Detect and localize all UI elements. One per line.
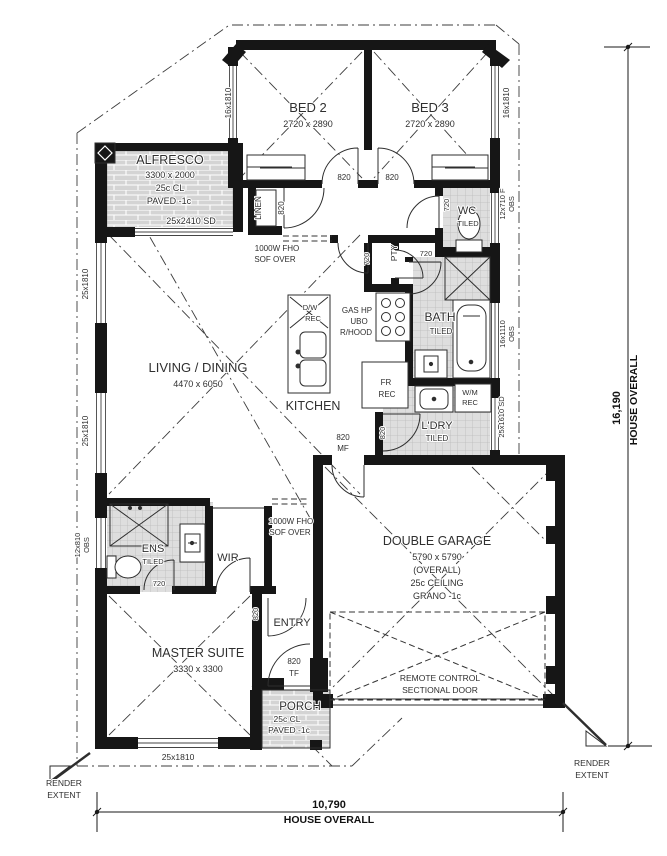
label-render-extent-left-2: EXTENT [47,790,81,800]
dim-width [93,792,567,832]
label-room-bath-finish: TILED [430,327,453,336]
label-washing-machine-label-1: W/M [462,388,477,397]
label-room-garage-name: DOUBLE GARAGE [383,534,491,548]
label-dim-height-caption: HOUSE OVERALL [628,354,640,445]
label-linen-label: LINEN [254,196,263,220]
label-door-kitchen-label: 720 [362,253,371,266]
label-window-bed2-label: 16x1810 [224,87,233,118]
label-washing-machine-label-2: REC [462,398,478,407]
label-room-master-name: MASTER SUITE [152,646,244,660]
label-render-extent-left-1: RENDER [46,778,82,788]
label-room-porch-finish: PAVED -1c [268,725,310,735]
laundry-trough [415,386,453,412]
window-living-1 [95,243,107,323]
label-bulkhead-entry-label-2: SOF OVER [269,528,311,537]
render-extent-pointer-right [563,703,606,746]
label-window-wc-label-2: OBS [507,196,516,212]
label-door-laundry-label: 820 [378,427,387,440]
label-room-bed3-dims: 2720 x 2890 [405,119,455,129]
label-door-wc-label: 720 [442,199,451,212]
label-door-front-label-2: TF [289,669,299,678]
label-room-wc-finish: TILED [457,219,479,228]
label-window-living-label-1: 25x1810 [81,268,90,299]
label-bulkhead-kitchen-label-1: 1000W FHO [255,244,299,253]
label-bulkhead-entry-label-1: 1000W FHO [269,517,313,526]
label-window-bath-label-2: OBS [507,326,516,342]
label-window-ens-label-2: OBS [82,537,91,553]
label-window-wc-label-1: 12x710 F [498,188,507,220]
label-render-extent-right-1: RENDER [574,758,610,768]
label-door-bath-label: 720 [420,249,433,258]
label-door-garage-entry-label-1: 820 [336,433,350,442]
label-door-entry-label: 820 [251,608,260,621]
label-room-alfresco-ceiling: 25c CL [156,183,185,193]
cooktop [376,293,410,341]
label-room-wc-name: WC [458,205,476,217]
label-room-laundry-finish: TILED [426,434,449,443]
window-bed3 [490,66,500,138]
vanity-ens [180,524,205,562]
label-room-entry-name: ENTRY [273,617,311,629]
robe-bed2 [247,155,305,180]
label-window-ens-label-1: 12x810 [73,533,82,558]
label-room-garage-note-1: (OVERALL) [413,565,461,575]
label-window-living-label-2: 25x1810 [81,415,90,446]
label-garage-door-label-2: SECTIONAL DOOR [402,685,478,695]
window-master-front [138,737,218,749]
label-kitchen-appliance-label-3: R/HOOD [340,328,372,337]
label-room-kitchen-name: KITCHEN [286,399,341,413]
label-room-living-name: LIVING / DINING [149,360,248,375]
label-room-bed2-name: BED 2 [289,100,327,115]
label-room-garage-note-2: 25c CEILING [410,578,463,588]
label-kitchen-appliance-label-2: UBO [350,317,367,326]
label-room-alfresco-finish: PAVED -1c [147,196,192,206]
label-room-ens-name: ENS [142,543,165,555]
sliding-door-alfresco [135,227,233,237]
door-wc [407,196,439,228]
label-kitchen-dw-label-2: REC [305,314,321,323]
label-kitchen-appliance-label-1: GAS HP [342,306,372,315]
floor-plan-drawing: BED 22720 x 2890BED 32720 x 289016x18101… [0,0,667,856]
label-pantry-label: PTY [389,244,399,261]
bathtub [453,300,490,378]
label-dim-width-caption: HOUSE OVERALL [284,814,375,826]
label-room-alfresco-name: ALFRESCO [136,153,204,167]
label-room-master-dims: 3330 x 3300 [173,664,223,674]
label-render-extent-right-2: EXTENT [575,770,609,780]
label-room-bath-name: BATH [424,310,455,324]
label-fridge-recess-label-1: FR [381,378,392,387]
label-room-alfresco-dims: 3300 x 2000 [145,170,195,180]
label-door-alfresco-sd-label: 25x2410 SD [166,216,216,226]
label-door-front-label-1: 820 [287,657,301,666]
robe-bed3 [432,155,488,180]
label-room-porch-name: PORCH [279,701,321,713]
label-fridge-recess-label-2: REC [379,390,396,399]
toilet-ens [107,556,141,578]
label-room-bed3-name: BED 3 [411,100,449,115]
label-room-ens-finish: TILED [142,557,164,566]
label-door-linen-label: 820 [277,201,286,215]
window-ens-obscure [95,518,107,568]
label-door-laundry-sd-label: 25x1610 SD [497,396,506,438]
label-window-bed3-label: 16x1810 [502,87,511,118]
label-room-garage-note-3: GRANO -1c [413,591,462,601]
label-bulkhead-kitchen-label-2: SOF OVER [254,255,296,264]
label-door-bed3-label: 820 [385,173,399,182]
label-room-wir-name: WIR [217,552,238,564]
label-door-garage-entry-label-2: MF [337,444,349,453]
label-room-bed2-dims: 2720 x 2890 [283,119,333,129]
label-door-ens-label: 720 [153,579,166,588]
vanity-bath [415,350,447,378]
label-room-laundry-name: L'DRY [421,420,453,432]
alfresco-pier [95,143,115,163]
label-window-bath-label-1: 16x1110 [498,320,507,348]
label-dim-height-value: 16,190 [611,391,623,425]
label-window-master-front-label: 25x1810 [162,752,195,762]
label-room-porch-ceiling: 25c CL [274,714,301,724]
label-room-living-dims: 4470 x 6050 [173,379,223,389]
door-hall-linen [284,188,324,228]
label-dim-width-value: 10,790 [312,799,346,811]
label-room-garage-dims: 5790 x 5790 [412,552,462,562]
label-kitchen-dw-label-1: D/W [303,303,319,312]
render-extent-pointer-left [50,753,90,781]
label-garage-door-label-1: REMOTE CONTROL [400,673,481,683]
label-door-bed2-label: 820 [337,173,351,182]
window-living-2 [95,393,107,473]
floor-plan-page: BED 22720 x 2890BED 32720 x 289016x18101… [0,0,667,856]
